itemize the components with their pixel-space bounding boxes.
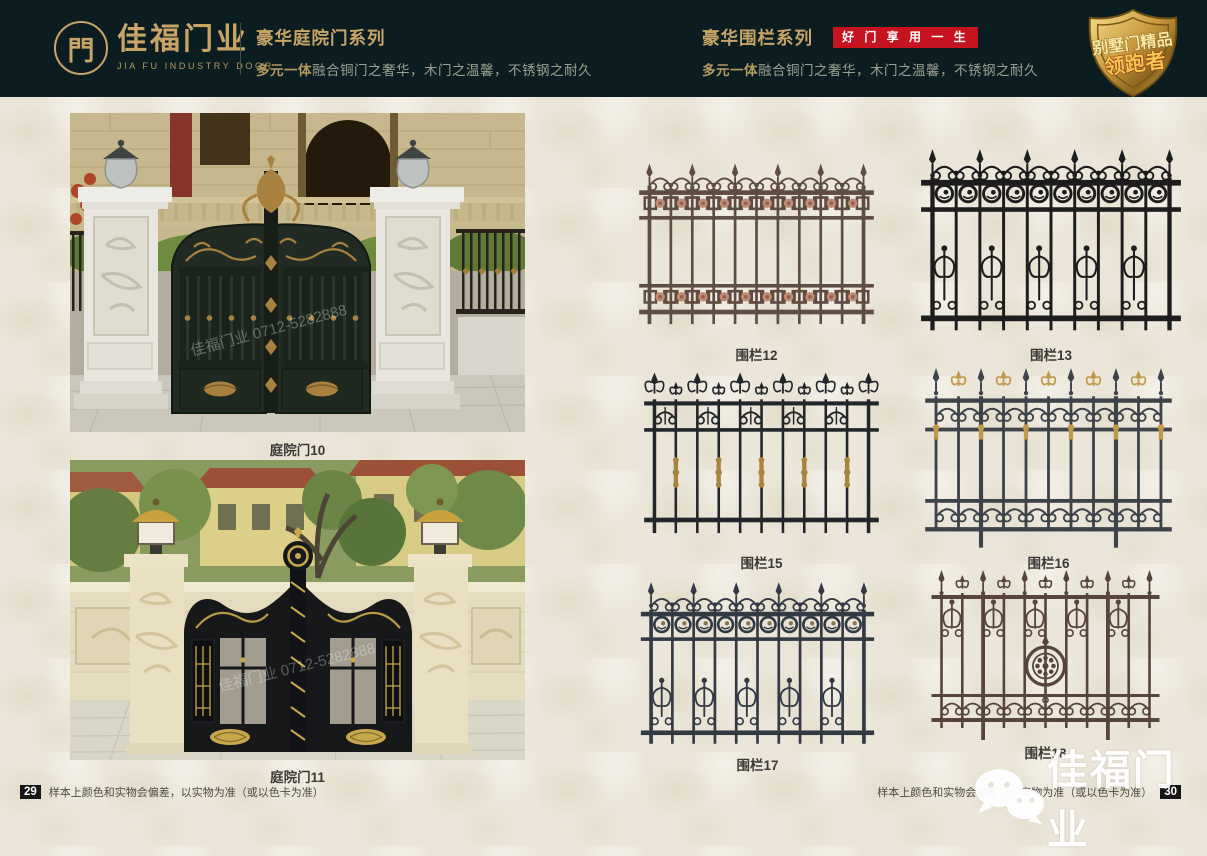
fence-product-13: 围栏13 [908,148,1194,364]
watermark: 佳福门业 [974,736,1207,856]
series-section-right: 豪华围栏系列 好 门 享 用 一 生 多元一体融合铜门之奢华，木门之温馨，不锈钢… [702,25,1038,79]
series-subtitle-right: 多元一体融合铜门之奢华，木门之温馨，不锈钢之耐久 [702,59,1038,79]
fence-illustration-17 [631,578,884,754]
header: 門 佳福门业 JIA FU INDUSTRY DOOR 豪华庭院门系列 多元一体… [0,0,1207,97]
page-number-left: 29 [20,785,41,799]
brand-name-en: JIA FU INDUSTRY DOOR [117,61,274,71]
fence-product-17: 围栏17 [631,578,884,774]
brand-logo-icon: 門 [54,21,108,75]
fence-caption: 围栏16 [1027,552,1069,572]
fence-caption: 围栏13 [1030,344,1072,364]
disclaimer-left: 样本上颜色和实物会偏差，以实物为准（或以色卡为准） [49,784,324,800]
header-divider [240,23,241,75]
wechat-icon [974,765,1047,827]
stone-pillar-left [74,187,172,409]
stone-pillar-right [408,554,472,754]
courtyard-gate-photo-11: 佳福门业 0712-5282888 [70,460,525,760]
brand-logo: 佳福门业 JIA FU INDUSTRY DOOR [117,25,274,71]
stone-pillar-left [124,554,188,754]
fence-illustration-18 [896,570,1195,742]
series-subtitle-left: 多元一体融合铜门之奢华，木门之温馨，不锈钢之耐久 [256,59,592,79]
fence-caption: 围栏17 [736,754,778,774]
courtyard-gate-photo-10: 佳福门业 0712-5282888 [70,113,525,432]
stone-pillar-right [366,187,464,409]
courtyard-gate-photo-11-illustration: 佳福门业 0712-5282888 [70,460,525,760]
slogan-badge: 好 门 享 用 一 生 [833,27,978,47]
fence-illustration-16 [908,366,1189,552]
fence-product-16: 围栏16 [908,366,1189,572]
fence-illustration-12 [633,156,880,344]
fence-product-15: 围栏15 [638,366,885,572]
subtitle-lead: 多元一体 [256,63,312,78]
photo-caption: 庭院门11 [70,766,525,786]
fence-product-12: 围栏12 [633,156,880,364]
subtitle-lead: 多元一体 [702,63,758,78]
premium-shield-badge-icon: 别墅门精品 领跑者 [1074,6,1192,100]
brand-logo-symbol: 門 [68,29,95,68]
watermark-brand-text: 佳福门业 [1047,736,1207,856]
series-title-left: 豪华庭院门系列 [256,25,592,50]
brand-name: 佳福门业 [117,25,274,55]
courtyard-gate-photo-10-illustration: 佳福门业 0712-5282888 [70,113,525,432]
footer-left: 29 样本上颜色和实物会偏差，以实物为准（或以色卡为准） [20,784,324,800]
fence-caption: 围栏15 [740,552,782,572]
series-title-right: 豪华围栏系列 [702,25,813,50]
series-section-left: 豪华庭院门系列 多元一体融合铜门之奢华，木门之温馨，不锈钢之耐久 [256,25,592,79]
subtitle-rest: 融合铜门之奢华，木门之温馨，不锈钢之耐久 [312,63,592,78]
fence-illustration-13 [908,148,1194,344]
photo-caption: 庭院门10 [70,439,525,459]
subtitle-rest: 融合铜门之奢华，木门之温馨，不锈钢之耐久 [758,63,1038,78]
fence-illustration-15 [638,366,885,552]
fence-caption: 围栏12 [735,344,777,364]
fence-product-18: 围栏18 [896,570,1195,762]
